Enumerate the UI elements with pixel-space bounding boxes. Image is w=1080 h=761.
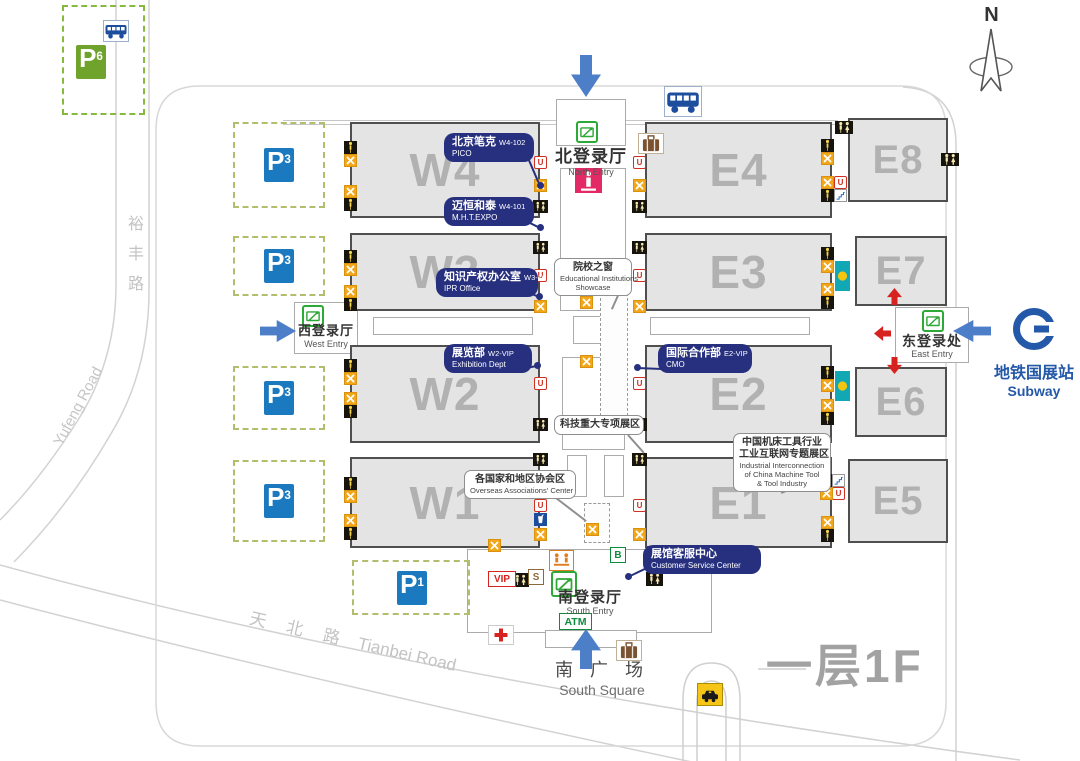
callout-subtitle: M.H.T.EXPO — [452, 213, 526, 223]
stairs-icon — [344, 141, 357, 154]
area-callout-title: 各国家和地区协会区 — [470, 474, 570, 486]
area-callout: 中国机床工具行业工业互联网专题展区Industrial Interconnect… — [733, 433, 831, 492]
callout-title: 北京笔克W4-102 — [452, 136, 526, 149]
hall-e5: E5 — [848, 459, 948, 543]
hall-label: E7 — [876, 249, 927, 294]
parking-badge-p3: P3 — [264, 249, 294, 283]
south-square-label-en: South Square — [538, 682, 666, 698]
registration-icon — [576, 121, 598, 143]
freight-elevator-icon — [586, 523, 599, 536]
entry-name-en: South Entry — [542, 606, 638, 617]
first-aid-icon — [488, 625, 514, 645]
callout-room-code: E2-VIP — [724, 349, 748, 358]
yufeng-road-label: 裕丰路 — [121, 215, 141, 305]
tianbei-road-line — [0, 600, 900, 761]
area-callout-subtitle: of China Machine Tool — [739, 470, 825, 479]
compass-north-label: N — [955, 4, 1028, 27]
parking-badge-p3: P3 — [264, 381, 294, 415]
bus-stop-icon — [664, 86, 702, 117]
business-center-icon: B — [610, 547, 626, 563]
shop-icon: S — [528, 569, 544, 585]
stairs-icon — [344, 477, 357, 490]
vip-room-icon: VIP — [488, 571, 516, 587]
entry-name-zh: 东登录处 — [896, 333, 968, 349]
floor-level-label: 一层1F — [766, 630, 924, 696]
restroom-icon — [646, 572, 663, 586]
building-outline — [573, 316, 603, 344]
parking-badge-p3: P3 — [264, 148, 294, 182]
hall-e6: E6 — [855, 367, 947, 437]
area-callout-subtitle: Industrial Interconnection — [739, 461, 825, 470]
red-arrow-left-icon — [874, 326, 891, 341]
freight-elevator-icon — [344, 490, 357, 503]
freight-elevator-icon — [821, 152, 834, 165]
entry-name-zh: 北登录厅 — [543, 147, 639, 167]
callout-subtitle: Customer Service Center — [651, 561, 753, 571]
dashed-area — [600, 288, 628, 426]
hall-e8: E8 — [848, 118, 948, 202]
registration-icon — [922, 310, 944, 332]
stairs-icon — [344, 405, 357, 418]
exhibition-floor-map: N 一层1F 地铁国展站 Subway 裕丰路 Yufeng Road 天 北 … — [0, 0, 1080, 761]
callout-subtitle: Exhibition Dept — [452, 360, 524, 370]
area-callout-title: 工业互联网专题展区 — [739, 449, 825, 461]
callout-subtitle: PICO — [452, 149, 526, 159]
freight-elevator-icon — [633, 528, 646, 541]
hall-label: E5 — [873, 479, 924, 524]
hall-label: E2 — [709, 367, 767, 421]
restroom-icon — [533, 418, 548, 431]
hall-label: W2 — [410, 367, 481, 421]
area-callout-title: 科技重大专项展区 — [560, 419, 638, 431]
entry-name-en: East Entry — [896, 349, 968, 360]
entry-name-en: North Entry — [543, 167, 639, 178]
callout-subtitle: IPR Office — [444, 284, 530, 294]
label-callout: 知识产权办公室W3-101IPR Office — [436, 268, 538, 297]
escalator-icon: U — [834, 176, 847, 189]
stairs-icon — [821, 139, 834, 152]
entry-label: 南登录厅South Entry — [542, 589, 638, 617]
restroom-icon — [533, 241, 548, 254]
label-callout: 国际合作部E2-VIPCMO — [658, 344, 752, 373]
building-outline — [650, 317, 810, 335]
escalator-icon: U — [832, 487, 845, 500]
elevator-icon — [835, 371, 850, 401]
stairs-icon — [821, 366, 834, 379]
freight-elevator-icon — [344, 263, 357, 276]
stairs-icon — [821, 247, 834, 260]
freight-elevator-icon — [488, 539, 501, 552]
freight-elevator-icon — [633, 300, 646, 313]
stairs-icon — [344, 250, 357, 263]
escalator-icon: U — [534, 499, 547, 512]
luggage-storage-icon — [616, 640, 642, 661]
callout-room-code: W4-102 — [499, 138, 525, 147]
parking-badge-p1: P1 — [397, 571, 427, 605]
label-callout: 迈恒和泰W4-101M.H.T.EXPO — [444, 197, 534, 226]
callout-dot — [634, 364, 641, 371]
hall-e3: E3 — [645, 233, 832, 311]
freight-elevator-icon — [580, 355, 593, 368]
entry-name-en: West Entry — [294, 339, 358, 350]
freight-elevator-icon — [821, 260, 834, 273]
parking-badge-p3: P3 — [264, 484, 294, 518]
stairs-icon — [821, 296, 834, 309]
blue-arrow-down-icon — [571, 55, 601, 97]
subway-station: 地铁国展站 Subway — [984, 306, 1080, 399]
stairs-icon — [344, 527, 357, 540]
label-callout: 展览部W2-VIPExhibition Dept — [444, 344, 532, 373]
bus-stop-icon — [103, 20, 129, 42]
freight-elevator-icon — [344, 154, 357, 167]
taxi-stand-icon — [697, 683, 723, 706]
callout-subtitle: CMO — [666, 360, 744, 370]
stairs-icon — [821, 529, 834, 542]
entry-label: 西登录厅West Entry — [294, 324, 358, 350]
freight-elevator-icon — [534, 300, 547, 313]
hall-label: E4 — [709, 143, 767, 197]
freight-elevator-icon — [821, 399, 834, 412]
subway-station-name-en: Subway — [984, 383, 1080, 399]
freight-elevator-icon — [821, 516, 834, 529]
entry-name-zh: 南登录厅 — [542, 589, 638, 606]
stairs-icon — [344, 359, 357, 372]
hall-label: E3 — [709, 245, 767, 299]
callout-title: 展馆客服中心 — [651, 548, 753, 561]
callout-dot — [536, 293, 543, 300]
callout-title: 展览部W2-VIP — [452, 347, 524, 360]
area-callout-subtitle: Showcase — [560, 283, 626, 292]
building-outline — [604, 455, 624, 497]
callout-dot — [534, 362, 541, 369]
compass: N — [958, 4, 1028, 102]
callout-room-code: W3-101 — [524, 273, 550, 282]
area-callout: 科技重大专项展区 — [554, 415, 644, 435]
south-square-label: 南 广 场 South Square — [538, 660, 666, 698]
restroom-icon — [632, 200, 647, 213]
south-square-label-zh: 南 广 场 — [538, 660, 666, 682]
area-callout-subtitle: & Tool Industry — [739, 479, 825, 488]
stairs-icon — [344, 298, 357, 311]
entry-name-zh: 西登录厅 — [294, 324, 358, 339]
area-callout-title: 院校之窗 — [560, 262, 626, 274]
elevator-icon — [835, 261, 850, 291]
red-arrow-up-icon — [887, 288, 902, 305]
drinking-water-icon — [534, 513, 547, 526]
freight-elevator-icon — [344, 514, 357, 527]
staircase-icon — [834, 189, 847, 202]
stairs-icon — [344, 198, 357, 211]
building-outline — [373, 317, 533, 335]
restroom-icon — [835, 121, 853, 134]
freight-elevator-icon — [344, 392, 357, 405]
freight-elevator-icon — [633, 179, 646, 192]
callout-title: 国际合作部E2-VIP — [666, 347, 744, 360]
compass-needle — [958, 27, 1028, 97]
entry-label: 东登录处East Entry — [896, 333, 968, 360]
callout-title: 迈恒和泰W4-101 — [452, 200, 526, 213]
subway-station-name: 地铁国展站 — [984, 359, 1080, 383]
callout-dot — [625, 573, 632, 580]
hall-label: E6 — [876, 380, 927, 425]
escalator-icon: U — [633, 499, 646, 512]
freight-elevator-icon — [344, 285, 357, 298]
freight-elevator-icon — [821, 379, 834, 392]
entry-label: 北登录厅North Entry — [543, 147, 639, 177]
freight-elevator-icon — [821, 176, 834, 189]
restroom-icon — [533, 453, 548, 466]
area-callout-subtitle: Overseas Associations' Center — [470, 486, 570, 495]
blue-arrow-right-icon — [260, 320, 296, 342]
freight-elevator-icon — [821, 283, 834, 296]
escalator-icon: U — [534, 377, 547, 390]
service-desk-icon — [549, 550, 574, 571]
stairs-icon — [821, 412, 834, 425]
area-callout-title: 中国机床工具行业 — [739, 437, 825, 449]
callout-title: 知识产权办公室W3-101 — [444, 271, 530, 284]
label-callout: 北京笔克W4-102PICO — [444, 133, 534, 162]
escalator-icon: U — [633, 377, 646, 390]
restroom-icon — [941, 153, 959, 166]
stairs-icon — [821, 189, 834, 202]
freight-elevator-icon — [344, 372, 357, 385]
hall-e4: E4 — [645, 122, 832, 218]
luggage-storage-icon — [638, 133, 664, 154]
freight-elevator-icon — [580, 296, 593, 309]
callout-dot — [537, 224, 544, 231]
callout-dot — [537, 182, 544, 189]
staircase-icon — [832, 474, 845, 487]
callout-room-code: W2-VIP — [488, 349, 514, 358]
freight-elevator-icon — [534, 528, 547, 541]
area-callout: 院校之窗Educational InstitutionsShowcase — [554, 258, 632, 296]
subway-logo-icon — [1011, 306, 1057, 352]
area-callout-subtitle: Educational Institutions — [560, 274, 626, 283]
restroom-icon — [533, 200, 548, 213]
parking-badge-p6: P6 — [76, 45, 106, 79]
freight-elevator-icon — [344, 185, 357, 198]
callout-room-code: W4-101 — [499, 202, 525, 211]
blue-arrow-up-icon — [571, 629, 601, 669]
restroom-icon — [632, 453, 647, 466]
restroom-icon — [632, 241, 647, 254]
label-callout: 展馆客服中心Customer Service Center — [643, 545, 761, 574]
area-callout: 各国家和地区协会区Overseas Associations' Center — [464, 470, 576, 499]
hall-label: E8 — [873, 138, 924, 183]
